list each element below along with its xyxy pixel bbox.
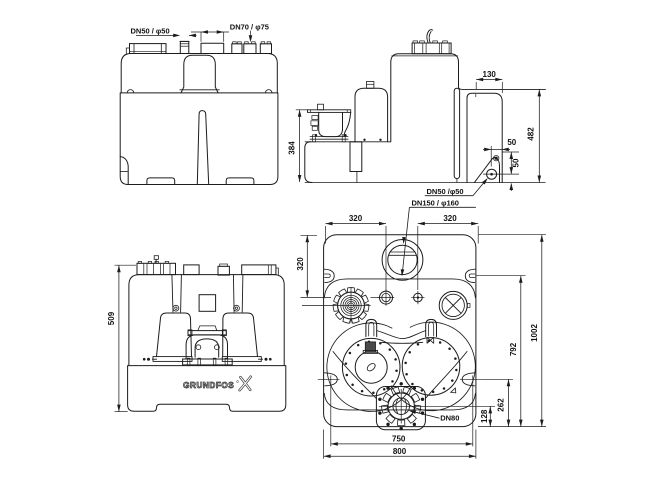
svg-text:DN70 / φ75: DN70 / φ75: [230, 23, 269, 32]
svg-text:320: 320: [443, 214, 457, 223]
svg-text:130: 130: [483, 70, 497, 79]
svg-text:320: 320: [296, 257, 305, 271]
svg-text:DN50 /φ50: DN50 /φ50: [427, 187, 464, 196]
svg-text:509: 509: [107, 311, 116, 325]
svg-text:384: 384: [288, 141, 297, 155]
svg-text:800: 800: [393, 447, 407, 456]
svg-text:50: 50: [512, 158, 521, 167]
svg-text:262: 262: [497, 398, 506, 412]
svg-text:DN80: DN80: [440, 414, 459, 423]
svg-text:128: 128: [480, 409, 489, 423]
svg-text:50: 50: [507, 138, 516, 147]
svg-text:792: 792: [509, 342, 518, 356]
svg-text:750: 750: [392, 435, 406, 444]
svg-text:DN50 / φ50: DN50 / φ50: [131, 27, 170, 36]
svg-text:482: 482: [527, 127, 536, 141]
svg-text:320: 320: [349, 214, 363, 223]
svg-text:DN150 / φ160: DN150 / φ160: [412, 199, 459, 208]
svg-text:1002: 1002: [530, 324, 539, 342]
svg-text:GRUNDFOS: GRUNDFOS: [183, 381, 234, 390]
